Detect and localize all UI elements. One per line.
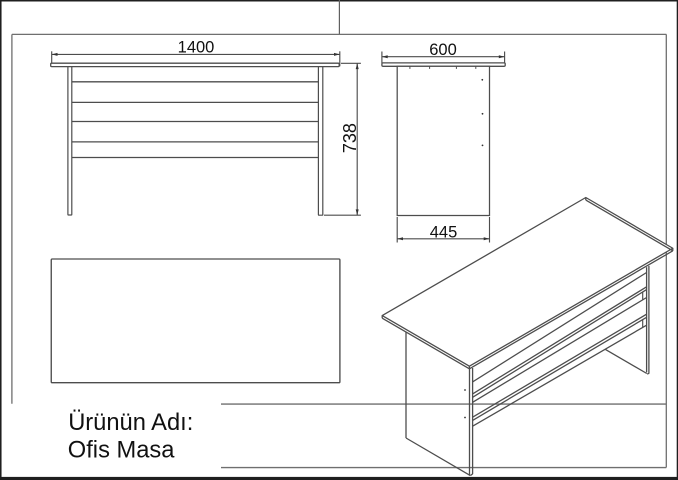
svg-text:600: 600 xyxy=(429,41,457,59)
svg-text:445: 445 xyxy=(430,224,458,242)
svg-text:Ürünün Adı:: Ürünün Adı: xyxy=(68,409,193,436)
svg-text:1400: 1400 xyxy=(178,39,215,57)
svg-text:738: 738 xyxy=(340,123,360,153)
svg-text:Ofis Masa: Ofis Masa xyxy=(68,437,175,463)
